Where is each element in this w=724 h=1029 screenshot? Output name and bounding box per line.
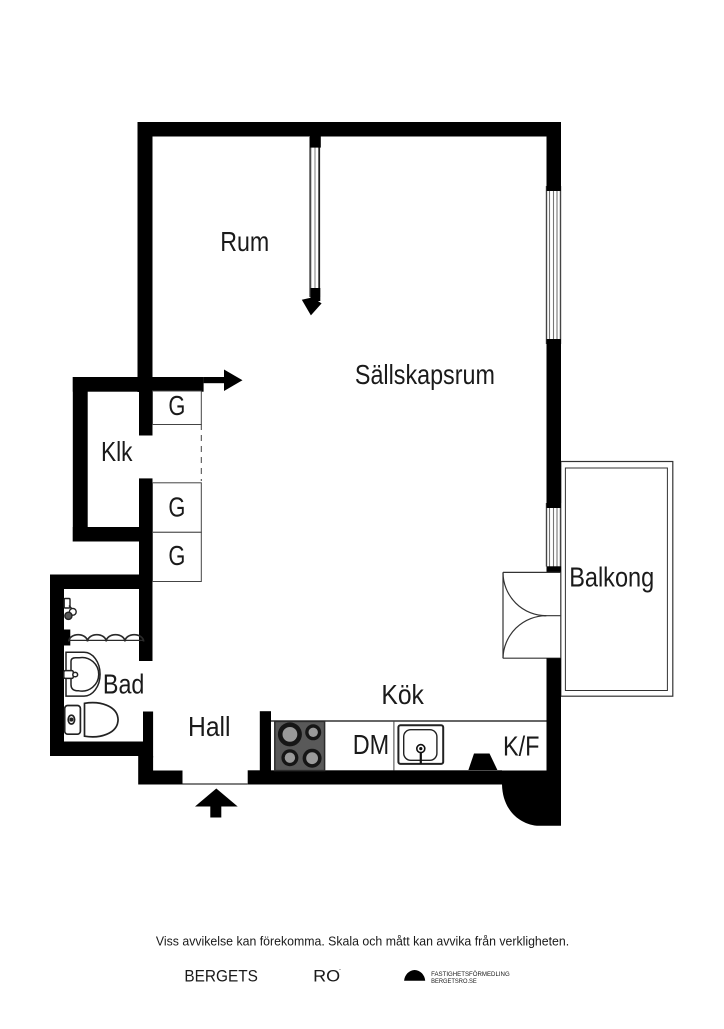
svg-text:Rum: Rum — [220, 226, 269, 257]
svg-text:¨: ¨ — [339, 970, 341, 976]
svg-text:Viss avvikelse kan förekomma.: Viss avvikelse kan förekomma. Skala och … — [156, 934, 569, 949]
svg-text:Bad: Bad — [103, 669, 144, 700]
svg-text:G: G — [168, 491, 185, 522]
svg-text:Kök: Kök — [381, 679, 424, 710]
svg-text:FASTIGHETSFÖRMEDLING: FASTIGHETSFÖRMEDLING — [431, 970, 510, 978]
svg-text:G: G — [168, 390, 185, 421]
svg-text:K/F: K/F — [503, 731, 540, 762]
svg-text:BERGETS: BERGETS — [184, 968, 258, 986]
svg-text:Sällskapsrum: Sällskapsrum — [355, 359, 495, 390]
svg-text:DM: DM — [353, 729, 390, 760]
svg-text:Balkong: Balkong — [569, 562, 654, 593]
svg-text:RO: RO — [313, 968, 340, 986]
svg-text:Klk: Klk — [101, 436, 133, 467]
svg-text:Hall: Hall — [188, 711, 231, 742]
svg-text:BERGETSRO.SE: BERGETSRO.SE — [431, 978, 477, 985]
svg-text:G: G — [168, 540, 185, 571]
